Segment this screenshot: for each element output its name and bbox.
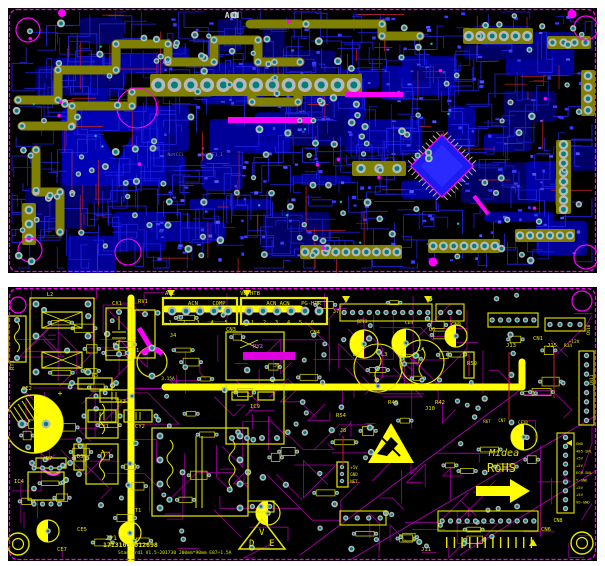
pcb-top-svg: ACNACLNetCE1_NetCE1_1: [8, 8, 597, 273]
silk-label: GND: [350, 472, 358, 477]
silk-label: CN4: [310, 330, 321, 336]
pcb-layout-document: ACNACLNetCE1_NetCE1_1 GND485-SNL+5V+5VEC…: [0, 0, 605, 566]
silk-label: D6: [353, 352, 360, 358]
silk-label: J11: [421, 547, 431, 553]
silk-label: JP1: [105, 534, 117, 542]
silk-label: CE4: [405, 320, 413, 326]
silk-label: Q6: [429, 327, 436, 333]
silk-label: CN3: [226, 327, 236, 333]
silk-label: +5V: [350, 465, 358, 470]
silk-label: R7: [46, 456, 53, 462]
rohs-label: RoHS: [487, 461, 516, 475]
silk-label: R42: [435, 400, 445, 406]
silk-label: R5: [92, 373, 99, 379]
cn8-pin-label: +5V: [576, 485, 584, 490]
board-id-line2: Standard1 V1.5-201730 200mm*90mm E87+1.5…: [118, 550, 232, 556]
silk-label: R59: [467, 361, 477, 367]
bottom-generated-layers: GND485-SNL+5V+5VECM-SNLY-GND+5V+5VVO-GND: [8, 287, 597, 561]
cn8-pin-label: VO-GND: [576, 499, 590, 504]
silk-label: R54: [336, 413, 347, 419]
cn8-pin-label: +5V: [576, 492, 584, 497]
vde-logo-letter-e: E: [269, 539, 274, 549]
silk-label: CN10: [586, 324, 592, 335]
silk-label: NetCE1_: [168, 152, 187, 158]
silk-label: R67: [483, 419, 491, 424]
fiducial-dot: [568, 10, 577, 19]
silk-label: L4: [418, 347, 425, 353]
silk-label: CN9: [451, 322, 461, 328]
silk-label: +12V: [569, 339, 580, 345]
silk-label: RY2: [253, 344, 263, 350]
pcb-top-copper-view[interactable]: ACNACLNetCE1_NetCE1_1: [8, 8, 597, 273]
silk-label: CY2: [135, 424, 145, 430]
silk-label: CE7: [57, 547, 67, 553]
silk-label: RV1: [138, 299, 148, 305]
silk-label: L3: [381, 352, 388, 358]
silk-label: COMP: [212, 301, 226, 307]
brand-logo-text: Midea: [488, 448, 519, 459]
silk-label: CN6: [541, 527, 551, 533]
silk-label: J10: [425, 406, 435, 412]
silk-label: 1 2 3 4 5 6: [251, 320, 317, 326]
fiducial-dot: [429, 258, 438, 267]
pcb-bottom-silkscreen-view[interactable]: GND485-SNL+5V+5VECM-SNLY-GND+5V+5VVO-GND…: [8, 287, 597, 561]
cn8-pin-label: +5V: [576, 456, 584, 461]
silk-label: F1: [133, 348, 140, 354]
silk-label: CN8: [553, 518, 562, 524]
silk-label: J13: [506, 343, 516, 349]
relay-coil-highlight: [243, 352, 295, 360]
silk-label: CN7: [498, 418, 506, 423]
silk-label: CE5: [77, 527, 87, 533]
silk-label: NetCE1_1: [201, 152, 223, 158]
silk-label: J8: [340, 428, 347, 434]
silk-label: IC4: [14, 479, 25, 485]
pcb-bottom-svg: GND485-SNL+5V+5VECM-SNLY-GND+5V+5VVO-GND…: [8, 287, 597, 561]
cn8-pin-label: ECM-SNL: [576, 470, 593, 475]
silk-label: CE10: [518, 420, 528, 425]
silk-label: PG-HTR: [301, 301, 322, 307]
silk-label: T1: [135, 508, 142, 514]
silk-label: 3.15A: [161, 376, 175, 382]
silk-label: ACN: [188, 301, 198, 307]
silk-label: CY3: [116, 399, 126, 405]
silk-label: VB-HTB: [240, 291, 261, 297]
vde-logo-letter-d: D: [249, 539, 254, 549]
silk-label: J7: [333, 309, 340, 315]
top-generated-layers: [8, 8, 597, 273]
vde-logo-letter-v: V: [259, 528, 265, 538]
silk-label: ACN ACN: [266, 301, 289, 307]
silk-label: IC9: [250, 404, 260, 410]
cn8-pin-label: 485-SNL: [576, 448, 593, 453]
silk-label: CE2: [22, 386, 32, 392]
silk-label: +: [58, 389, 63, 398]
silk-label: NET: [350, 479, 358, 484]
silk-label: J4: [170, 333, 177, 339]
silk-label: R40: [388, 400, 398, 406]
fiducial-dot: [58, 9, 66, 17]
silk-label: D3: [77, 454, 84, 460]
cn8-pin-label: Y-GND: [576, 478, 588, 483]
silk-label: ACL: [165, 291, 176, 297]
silk-label: J5: [274, 363, 281, 369]
silk-label: CN1: [533, 336, 543, 342]
silk-label: ACL: [162, 60, 171, 66]
cn8-pin-label: GND: [576, 441, 584, 446]
silk-label: CY1: [99, 424, 109, 430]
silk-label: CX1: [112, 301, 122, 307]
silk-label: 1 2 3 4 5: [168, 320, 231, 326]
board-id-line1: 17131000012698: [103, 541, 158, 549]
silk-label: RT1: [10, 360, 16, 370]
cn8-pin-label: +5V: [576, 463, 584, 468]
silk-label: L2: [47, 292, 54, 298]
silk-label: J15: [547, 343, 557, 349]
silk-label: CE13: [357, 319, 368, 325]
silk-label: ACN: [225, 11, 240, 20]
silk-label: CN11: [589, 374, 595, 385]
